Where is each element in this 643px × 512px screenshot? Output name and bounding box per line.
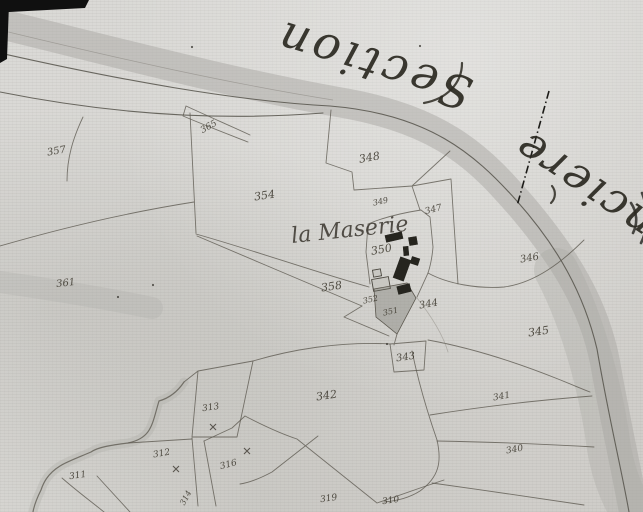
cross-mark [173,466,179,472]
faded-stream-wash [0,282,152,308]
building-footprint [410,256,420,265]
river-band [0,22,634,512]
parcel-label-354: 354 [253,188,276,204]
parcel-label-365: 365 [199,119,219,136]
building-footprint [393,257,411,281]
map-canvas: 3653573613483543493473503463583523513443… [0,0,643,512]
parcel-label-310: 310 [382,495,401,507]
parcel-label-343: 343 [395,351,415,365]
parcel-label-345: 345 [527,324,550,340]
parcel-label-312: 312 [152,448,171,461]
ink-speck [419,45,421,47]
parcel-label-347: 347 [424,203,443,217]
ink-speck [191,46,193,48]
place-label-la-maserie: la Maserie [290,212,410,249]
building-footprint [408,236,417,245]
parcel-label-311: 311 [69,470,87,482]
parcel-label-313: 313 [202,402,221,414]
ink-speck [152,284,154,286]
parcel-label-357: 357 [46,144,67,158]
parcel-label-350: 350 [370,241,393,257]
ink-speck [117,296,119,298]
parcel-label-348: 348 [358,149,381,165]
building-outline [372,269,381,277]
parcel-label-342: 342 [315,388,338,404]
parcel-label-314: 314 [178,489,193,507]
cadastral-map-sheet: 3653573613483543493473503463583523513443… [0,0,643,512]
building-footprint [403,246,409,255]
parcel-label-340: 340 [505,444,524,457]
parcel-label-358: 358 [320,279,343,295]
cross-mark [244,448,250,454]
parcel-label-344: 344 [418,297,439,311]
parcel-label-316: 316 [219,458,238,472]
parcel-label-349: 349 [372,196,389,208]
parcel-label-319: 319 [320,493,339,505]
ink-speck [386,343,388,345]
cross-mark [210,424,216,430]
parcel-label-341: 341 [492,391,511,404]
parcel-label-361: 361 [56,277,76,290]
stream-wash [33,382,184,512]
